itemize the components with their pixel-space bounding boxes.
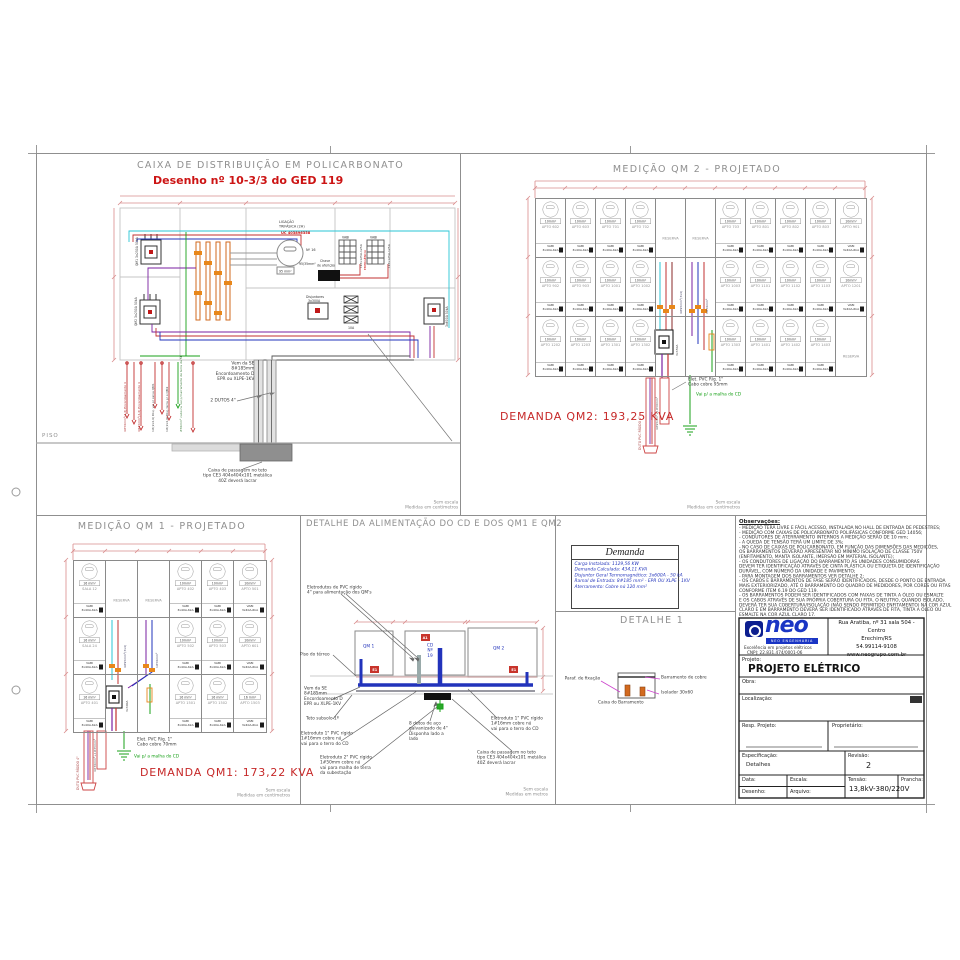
- det1-isolador-label: Isolador 30x60: [661, 690, 693, 695]
- meter-cell: 10mm²APTO 1103VABI3x40A-6kA: [806, 258, 836, 317]
- wire-size-label: 16 mm²: [207, 695, 228, 701]
- qm1-ground-symbol: [117, 731, 131, 760]
- wire-size-label: 10mm²: [720, 278, 741, 284]
- meter-cell: 10mm²APTO 1202VABI3x40A-6kA: [536, 317, 566, 376]
- breaker-icon: [799, 367, 803, 372]
- qm1-elet-note: Elet. PVC Ríg. 1" Cabo cobre 70mm: [137, 737, 177, 747]
- revisao-label: Revisão:: [848, 753, 869, 759]
- wire-size-label: 10mm²: [175, 638, 196, 644]
- wire-size-label: 10mm²: [780, 278, 801, 284]
- unit-label: APTO 1003: [716, 284, 745, 288]
- breaker-icon: [769, 248, 773, 253]
- breaker-strip: VABI3x40A-6kA: [596, 302, 625, 316]
- meter-cell: 10mm²APTO 703VABI3x40A-6kA: [716, 199, 746, 258]
- wire-size-label: 16 mm²: [79, 695, 100, 701]
- breaker-strip: VABI3x40A-6kA: [596, 362, 625, 376]
- unit-label: APTO 402: [170, 587, 201, 591]
- meter-cell: 10mm²APTO 503VABI3x40A-6kA: [202, 618, 234, 675]
- wire-size-label: 10mm²: [570, 219, 591, 225]
- breaker-strip: VABI3x40A-6kA: [776, 302, 805, 316]
- cd-breaker-qm1: [141, 234, 161, 264]
- meter-cell: 10mm²APTO 1201VABI3x40A-6kA: [836, 258, 866, 317]
- breaker-strip: VABI3x40A-6kA: [234, 660, 266, 674]
- wire-size-label: 10mm²: [207, 581, 228, 587]
- energy-meter-icon: [178, 678, 194, 694]
- cd-disj-geral: [424, 298, 444, 324]
- qm2-terra-note: Vai p/ a malha do CD: [696, 392, 741, 397]
- ann-eletroduto-2: Eletroduto 2" PVC rígido 1#50mm cobre nú…: [320, 755, 372, 776]
- wire-size-label: 10mm²: [570, 337, 591, 343]
- energy-meter-icon: [723, 320, 739, 336]
- breaker-icon: [589, 248, 593, 253]
- energy-meter-icon: [82, 564, 98, 580]
- energy-meter-icon: [843, 202, 859, 218]
- qm2-meter-grid: 10mm²APTO 602VABI3x40A-6kA10mm²APTO 603V…: [535, 198, 867, 377]
- notes-title: Observações:: [739, 519, 925, 525]
- energy-meter-icon: [543, 202, 559, 218]
- meter-cell: RESERVA: [686, 199, 716, 258]
- qm1-cabo-label: 4#70mm²+1#35mm²: [93, 738, 97, 772]
- localizacao-label: Localização:: [742, 696, 773, 702]
- det1-caixa-label: Caixa do Barramento: [598, 700, 644, 705]
- wire-size-label: 10mm²: [600, 337, 621, 343]
- energy-meter-icon: [82, 678, 98, 694]
- wire-size-label: 10mm²: [810, 278, 831, 284]
- meter-cell: [106, 618, 138, 675]
- meter-cell: 10mm²APTO 502VABI3x40A-6kA: [170, 618, 202, 675]
- meter-cell: RESERVA: [836, 317, 866, 376]
- meter-cell: 10mm²APTO 1203VABI3x40A-6kA: [566, 317, 596, 376]
- breaker-strip: VABI3x40A-6kA: [536, 302, 565, 316]
- cd-emergencia: EMERGÊNCIA: [362, 249, 367, 270]
- breaker-strip: VABI3x40A-6kA: [536, 243, 565, 257]
- breaker-strip: VABI3x40A-6kA: [806, 243, 835, 257]
- cd-exit-pins: [125, 362, 195, 432]
- wire-size-label: 10mm²: [240, 638, 261, 644]
- wire-size-label: 10mm²: [810, 337, 831, 343]
- det-caixa-teto: [424, 693, 451, 700]
- wire-size-label: 16 mm²: [79, 638, 100, 644]
- breaker-strip: VABI3x40A-6kA: [746, 243, 775, 257]
- cd-medidor-n: Nº 16: [306, 248, 316, 252]
- det-scale-note: Sem escalaMedidas em metros: [506, 787, 548, 797]
- ann-caixa-teto: Caixa de passagem no teto tipo CE3 404x4…: [477, 750, 546, 765]
- unit-label: APTO 1503: [234, 701, 266, 705]
- wire-size-label: 10mm²: [720, 337, 741, 343]
- energy-meter-icon: [753, 320, 769, 336]
- det1-leaders: [601, 677, 660, 694]
- unit-label: APTO 1401: [746, 343, 775, 347]
- cd-vabi-b: VABI: [370, 236, 377, 240]
- breaker-strip: VABI3x40A-6kA: [716, 362, 745, 376]
- qm1-scale-note: Sem escalaMedidas em centímetros: [237, 788, 290, 798]
- especificacao-value: Detalhes: [746, 762, 770, 768]
- meter-cell: 10mm²APTO 902VABI3x40A-6kA: [536, 258, 566, 317]
- breaker-icon: [619, 367, 623, 372]
- breaker-icon: [739, 367, 743, 372]
- reserva-label: RESERVA: [656, 236, 685, 241]
- breaker-icon: [649, 248, 653, 253]
- energy-meter-icon: [242, 564, 258, 580]
- unit-label: APTO 1002: [626, 284, 655, 288]
- breaker-icon: [99, 723, 103, 728]
- cd-ligacao2: TRIFÁSICA (2H): [278, 224, 305, 229]
- breaker-icon: [619, 248, 623, 253]
- drawing-sheet: LIGAÇÃO TRIFÁSICA (2H) UC 403896358 Nº 1…: [0, 0, 960, 960]
- cd-piso-label: PISO: [42, 433, 59, 439]
- breaker-strip: VABI3x40A-6kA: [170, 660, 201, 674]
- cd-tc: 10A: [348, 326, 355, 330]
- cd-dutos-label: 2 DUTOS 4": [211, 398, 236, 403]
- breaker-strip: VABI3x40A-6kA: [626, 302, 655, 316]
- unit-label: APTO 1303: [716, 343, 745, 347]
- energy-meter-icon: [843, 261, 859, 277]
- breaker-icon: [649, 307, 653, 312]
- breaker-icon: [195, 665, 199, 670]
- demanda-table: Demanda Carga Instalada: 1129,56 KWDeman…: [571, 545, 679, 609]
- energy-meter-icon: [82, 621, 98, 637]
- breaker-strip: VABI3x40A-6kA: [746, 302, 775, 316]
- unit-label: APTO 1203: [566, 343, 595, 347]
- wire-size-label: 10mm²: [780, 219, 801, 225]
- meter-cell: [106, 675, 138, 732]
- prancha-label: Prancha:: [901, 777, 923, 783]
- obra-label: Obra:: [742, 679, 756, 685]
- cd-section-title: CAIXA DE DISTRIBUIÇÃO EM POLICARBONATO: [137, 160, 397, 171]
- meter-cell: RESERVA: [138, 561, 170, 618]
- det-box-qm2-label: QM 2: [493, 646, 504, 651]
- energy-meter-icon: [242, 678, 258, 694]
- wire-size-label: 10mm²: [750, 337, 771, 343]
- wire-size-label: 10mm²: [630, 219, 651, 225]
- data-label: Data:: [742, 777, 756, 783]
- breaker-icon: [860, 307, 864, 312]
- cd-tc-stack: [344, 296, 358, 323]
- breaker-icon: [589, 367, 593, 372]
- meter-cell: [686, 258, 716, 317]
- breaker-icon: [559, 307, 563, 312]
- wire-size-label: 16 mm²: [79, 581, 100, 587]
- energy-meter-icon: [633, 202, 649, 218]
- cd-caixa-label: Caixa de passagem no teto tipo CE3 404x4…: [180, 468, 295, 483]
- cd-risers: [254, 360, 276, 443]
- unit-label: APTO 1102: [776, 284, 805, 288]
- wire-size-label: 10mm²: [240, 581, 261, 587]
- breaker-icon: [769, 307, 773, 312]
- unit-label: APTO 503: [202, 644, 233, 648]
- energy-meter-icon: [543, 261, 559, 277]
- cd-pin4: 1#(2x4,6) Disj. terra p/ o QM2: [165, 387, 169, 432]
- breaker-icon: [619, 307, 623, 312]
- meter-cell: [138, 675, 170, 732]
- meter-cell: [656, 317, 686, 376]
- cd-pin1: 4#50mm²(4,6) Encordoamento 4: [123, 382, 127, 432]
- ann-piso-terreo: Piso do térreo: [300, 652, 330, 657]
- breaker-icon: [195, 723, 199, 728]
- det-box-qm1-label: QM 1: [363, 644, 374, 649]
- unit-label: APTO 1103: [806, 284, 835, 288]
- meter-cell: 10mm²APTO 802VABI3x40A-6kA: [776, 199, 806, 258]
- breaker-icon: [829, 307, 833, 312]
- breaker-strip: VABI3x40A-6kA: [566, 362, 595, 376]
- energy-meter-icon: [543, 320, 559, 336]
- unit-label: APTO 702: [626, 225, 655, 229]
- cd-ligacao1: LIGAÇÃO: [279, 219, 294, 224]
- energy-meter-icon: [178, 621, 194, 637]
- unit-label: APTO 601: [234, 644, 266, 648]
- cd-bank2: I.L3x125A-125A: [387, 243, 391, 268]
- meter-cell: 10mm²APTO 603VABI3x40A-6kA: [566, 199, 596, 258]
- meter-cell: 10mm²APTO 702VABI3x40A-6kA: [626, 199, 656, 258]
- breaker-icon: [260, 723, 264, 728]
- breaker-icon: [227, 665, 231, 670]
- meter-cell: 16 mm²APTO 1502VABI3x40A-6kA: [202, 675, 234, 732]
- qm2-section-title: MEDIÇÃO QM 2 - PROJETADO: [557, 164, 837, 175]
- ann-eletroduto-3: Eletroduto 1" PVC rígido 1#16mm cobre nú…: [491, 716, 543, 731]
- det-marker-a: A1: [421, 634, 430, 641]
- qm1-terra-note: Vai p/ a malha do CD: [134, 754, 179, 759]
- wire-size-label: 10mm²: [175, 581, 196, 587]
- unit-label: APTO 1301: [596, 343, 625, 347]
- breaker-strip: VABI3x40A-6kA: [202, 660, 233, 674]
- meter-cell: 10mm²APTO 1001VABI3x40A-6kA: [596, 258, 626, 317]
- det1-barramento-label: Barramento de cobre: [661, 675, 707, 680]
- tensao-value: 13,8kV-380/220V: [849, 785, 909, 793]
- breaker-icon: [829, 248, 833, 253]
- breaker-strip: VABI3x40A-6kA: [746, 362, 775, 376]
- desenho-label: Desenho:: [742, 789, 766, 795]
- breaker-icon: [559, 248, 563, 253]
- energy-meter-icon: [633, 261, 649, 277]
- company-address: Rua Aratiba, nº 31 sala 504 - Centro Ere…: [831, 620, 922, 660]
- unit-label: APTO 703: [716, 225, 745, 229]
- unit-label: APTO 1402: [776, 343, 805, 347]
- cd-chave2: de aferição: [317, 264, 335, 268]
- meter-cell: 10mm²APTO 1303VABI3x40A-6kA: [716, 317, 746, 376]
- breaker-strip: VABI3x40A-6kA: [170, 603, 201, 617]
- meter-cell: 16 mm²APTO 401VABI3x40A-6kA: [74, 675, 106, 732]
- det-box-cd-label: CD Nº 19: [424, 643, 436, 658]
- unit-label: APTO 902: [536, 284, 565, 288]
- reserva-label: RESERVA: [106, 598, 137, 603]
- unit-label: APTO 1202: [536, 343, 565, 347]
- breaker-icon: [195, 608, 199, 613]
- ann-teto-subsolo: Teto subsolo 1º: [306, 716, 339, 721]
- breaker-strip: VABI3x40A-6kA: [626, 243, 655, 257]
- wire-size-label: 10mm²: [207, 638, 228, 644]
- revisao-value: 2: [866, 761, 871, 770]
- unit-label: APTO 901: [836, 225, 866, 229]
- unit-label: APTO 701: [596, 225, 625, 229]
- unit-label: APTO 1101: [746, 284, 775, 288]
- energy-meter-icon: [603, 202, 619, 218]
- breaker-icon: [260, 608, 264, 613]
- neo-logo-icon: [745, 621, 763, 637]
- meter-cell: 10mm²APTO 1003VABI3x40A-6kA: [716, 258, 746, 317]
- breaker-strip: VABI3x40A-6kA: [234, 603, 266, 617]
- demanda-row: Ramal de Entrada: 8#185 mm² - EPR OU XLP…: [575, 579, 681, 585]
- meter-cell: 16 mm²SALA 12VABI3x40A-6kA: [74, 561, 106, 618]
- meter-cell: 10mm²APTO 701VABI3x40A-6kA: [596, 199, 626, 258]
- energy-meter-icon: [210, 621, 226, 637]
- breaker-strip: VABI3x40A-6kA: [626, 362, 655, 376]
- det-marker-c: E1: [509, 666, 518, 673]
- wire-size-label: 10mm²: [600, 278, 621, 284]
- breaker-strip: VABI3x40A-6kA: [234, 718, 266, 732]
- meter-cell: 10mm²APTO 501VABI3x40A-6kA: [234, 561, 266, 618]
- cd-vabi-a: VABI: [342, 236, 349, 240]
- meter-cell: [138, 618, 170, 675]
- meter-cell: 10mm²APTO 1402VABI3x40A-6kA: [776, 317, 806, 376]
- cd-disj-center: [308, 303, 328, 319]
- cd-disj-qm2: QM2 3x250A 50kA: [134, 296, 138, 326]
- wire-size-label: 10mm²: [750, 219, 771, 225]
- cd-caixa-passagem: [240, 444, 292, 461]
- breaker-strip: VABI3x40A-6kA: [836, 302, 866, 316]
- qm1-duto-label: DUTO PVC RÍGIDO 4": [75, 756, 80, 790]
- energy-meter-icon: [723, 202, 739, 218]
- meter-cell: 10mm²APTO 1301VABI3x40A-6kA: [596, 317, 626, 376]
- energy-meter-icon: [573, 320, 589, 336]
- wire-size-label: 10mm²: [570, 278, 591, 284]
- energy-meter-icon: [753, 261, 769, 277]
- breaker-icon: [860, 248, 864, 253]
- meter-cell: 10mm²APTO 903VABI3x40A-6kA: [566, 258, 596, 317]
- breaker-icon: [769, 367, 773, 372]
- ann-eletroduto-1: Eletroduto 1" PVC rígido 1#16mm cobre nú…: [301, 731, 353, 746]
- escala-label: Escala:: [790, 777, 808, 783]
- unit-label: APTO 803: [806, 225, 835, 229]
- energy-meter-icon: [723, 261, 739, 277]
- demanda-row: Aterramento: Cobre nú 120 mm²: [575, 584, 681, 590]
- breaker-strip: VABI3x40A-6kA: [716, 243, 745, 257]
- cd-cable95: 95 mm²: [279, 270, 292, 274]
- cd-pin2: 4#35mm²(4,6) Encordoamento 4: [137, 382, 141, 432]
- demanda-table-title: Demanda: [572, 546, 678, 560]
- breaker-icon: [829, 367, 833, 372]
- energy-meter-icon: [178, 564, 194, 580]
- breaker-icon: [799, 248, 803, 253]
- unit-label: APTO 903: [566, 284, 595, 288]
- meter-cell: 10mm²APTO 402VABI3x40A-6kA: [170, 561, 202, 618]
- wire-size-label: 10mm²: [540, 278, 561, 284]
- cd-vem-da-se: Vem da SE 8#185mm Encordoamento D EPR ou…: [215, 361, 254, 382]
- unit-label: APTO 502: [170, 644, 201, 648]
- breaker-strip: VABI3x40A-6kA: [776, 362, 805, 376]
- breaker-icon: [649, 367, 653, 372]
- meter-cell: 10mm²APTO 1002VABI3x40A-6kA: [626, 258, 656, 317]
- breaker-strip: VABI3x40A-6kA: [836, 243, 866, 257]
- projeto-value: PROJETO ELÉTRICO: [748, 663, 860, 675]
- meter-cell: 16 mm²APTO 1503VABI3x40A-6kA: [234, 675, 266, 732]
- unit-label: APTO 1201: [836, 284, 866, 288]
- meter-cell: RESERVA: [106, 561, 138, 618]
- energy-meter-icon: [603, 261, 619, 277]
- meter-cell: [686, 317, 716, 376]
- breaker-strip: VABI3x40A-6kA: [74, 718, 105, 732]
- breaker-strip: VABI3x40A-6kA: [170, 718, 201, 732]
- meter-cell: 10mm²APTO 1302VABI3x40A-6kA: [626, 317, 656, 376]
- qm2-elet-note: Elet. PVC Ríg. 1" Cabo cobre 95mm: [688, 377, 728, 387]
- breaker-strip: VABI3x40A-6kA: [806, 302, 835, 316]
- unit-label: APTO 403: [202, 587, 233, 591]
- cd-pin3: 1#(2x4,6) Disj. vai p/ caixa QM1: [151, 383, 155, 432]
- breaker-icon: [739, 307, 743, 312]
- breaker-icon: [227, 608, 231, 613]
- meter-cell: 10mm²APTO 1102VABI3x40A-6kA: [776, 258, 806, 317]
- cad-linework: LIGAÇÃO TRIFÁSICA (2H) UC 403896358 Nº 1…: [0, 0, 960, 960]
- unit-label: APTO 1403: [806, 343, 835, 347]
- det-ground: [437, 700, 443, 712]
- ann-eletrodutos: Eletrodutos de PVC rígido 4" para alimen…: [307, 585, 372, 595]
- especificacao-label: Especificação:: [742, 753, 778, 759]
- breaker-strip: VABI3x40A-6kA: [806, 362, 835, 376]
- energy-meter-icon: [783, 320, 799, 336]
- qm2-scale-note: Sem escalaMedidas em centímetros: [687, 500, 740, 510]
- wire-size-label: 10mm²: [841, 219, 862, 225]
- cd-scale-note: Sem escalaMedidas em centímetros: [405, 500, 458, 510]
- cd-section-subtitle: Desenho nº 10-3/3 do GED 119: [153, 174, 343, 187]
- energy-meter-icon: [813, 202, 829, 218]
- wire-size-label: 10mm²: [630, 278, 651, 284]
- breaker-strip: VABI3x40A-6kA: [776, 243, 805, 257]
- breaker-icon: [227, 723, 231, 728]
- energy-meter-icon: [753, 202, 769, 218]
- wire-size-label: 10mm²: [720, 219, 741, 225]
- det-marker-b: E1: [370, 666, 379, 673]
- unit-label: APTO 801: [746, 225, 775, 229]
- breaker-icon: [739, 248, 743, 253]
- meter-cell: 16 mm²SALA 24VABI3x40A-6kA: [74, 618, 106, 675]
- cd-breaker-qm2: [140, 294, 160, 324]
- unit-label: APTO 1501: [170, 701, 201, 705]
- unit-label: APTO 602: [536, 225, 565, 229]
- wire-size-label: 10mm²: [841, 278, 862, 284]
- cd-pin5: #50mm² cabo nu vai p/ barramento de terr…: [179, 355, 183, 432]
- wire-size-label: 10mm²: [750, 278, 771, 284]
- arquivo-label: Arquivo:: [790, 789, 811, 795]
- energy-meter-icon: [783, 202, 799, 218]
- meter-cell: 10mm²APTO 801VABI3x40A-6kA: [746, 199, 776, 258]
- unit-label: APTO 401: [74, 701, 105, 705]
- det1-box: [618, 673, 655, 698]
- meter-cell: [656, 258, 686, 317]
- meter-cell: RESERVA: [656, 199, 686, 258]
- meter-cell: 10mm²APTO 602VABI3x40A-6kA: [536, 199, 566, 258]
- neo-logo-text: neo: [765, 613, 808, 638]
- energy-meter-icon: [603, 320, 619, 336]
- meter-cell: 10mm²APTO 901VABI3x40A-6kA: [836, 199, 866, 258]
- energy-meter-icon: [633, 320, 649, 336]
- cd-chave1: Chave: [320, 259, 330, 263]
- det1-isoladores: [625, 685, 645, 696]
- neo-logo-bar: NEO ENGENHARIA: [766, 638, 818, 644]
- unit-label: APTO 603: [566, 225, 595, 229]
- wire-size-label: 10mm²: [780, 337, 801, 343]
- unit-label: APTO 1001: [596, 284, 625, 288]
- meter-cell: 10mm²APTO 403VABI3x40A-6kA: [202, 561, 234, 618]
- wire-size-label: 16 mm²: [240, 695, 261, 701]
- reserva-label: RESERVA: [836, 354, 866, 359]
- energy-meter-icon: [573, 202, 589, 218]
- breaker-strip: VABI3x40A-6kA: [202, 718, 233, 732]
- breaker-strip: VABI3x40A-6kA: [566, 243, 595, 257]
- unit-label: APTO 1502: [202, 701, 233, 705]
- wire-size-label: 10mm²: [540, 337, 561, 343]
- energy-meter-icon: [242, 621, 258, 637]
- breaker-strip: VABI3x40A-6kA: [536, 362, 565, 376]
- wire-size-label: 10mm²: [810, 219, 831, 225]
